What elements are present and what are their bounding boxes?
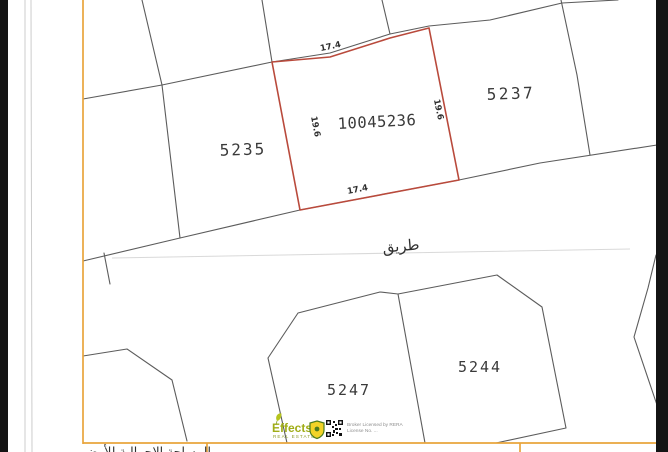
plot-label-5247: 5247 — [327, 381, 371, 399]
qr-code-icon — [326, 420, 343, 437]
plot-label-5237: 5237 — [486, 83, 535, 104]
scan-edge-right — [656, 0, 668, 452]
road-label: طريق — [382, 235, 420, 256]
license-text-line1: Broker Licensed by RERA — [347, 422, 404, 428]
scan-edge-left — [0, 0, 8, 452]
plot-label-5235: 5235 — [219, 139, 266, 160]
brand-subtext: REAL ESTATE — [273, 434, 315, 439]
brand-wordmark: Effects — [272, 421, 312, 435]
map-svg: 5235 10045236 5237 5247 5244 17.4 17.4 1… — [0, 0, 668, 452]
shield-icon — [310, 421, 324, 439]
plot-label-5244: 5244 — [458, 358, 502, 376]
scanned-cadastral-map-page: 5235 10045236 5237 5247 5244 17.4 17.4 1… — [0, 0, 668, 452]
license-text-line2: License No. ... — [347, 428, 378, 434]
bottom-table-label: المساحة الإجمالية للأرض — [83, 444, 211, 452]
